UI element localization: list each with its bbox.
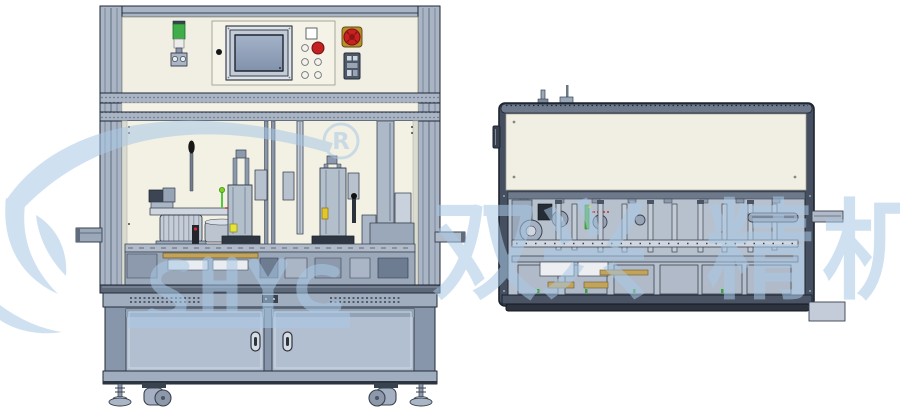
cross-beams bbox=[100, 93, 440, 121]
selector-square bbox=[306, 28, 317, 39]
leveling-foot-left bbox=[109, 384, 131, 406]
panel-knob bbox=[216, 49, 222, 55]
watermark-char-4: 机 bbox=[822, 190, 900, 315]
machine-drawing: R 双 兴 精 机 bbox=[0, 0, 900, 410]
start-button bbox=[312, 42, 324, 54]
front-view-machine bbox=[76, 6, 465, 406]
control-panel bbox=[122, 17, 418, 93]
registered-symbol-letter: R bbox=[332, 129, 350, 155]
top-posts bbox=[538, 85, 573, 104]
door-handle-right bbox=[283, 332, 292, 351]
connector-block bbox=[344, 53, 360, 79]
door-handle-left bbox=[251, 332, 260, 351]
estop-button bbox=[342, 27, 362, 47]
lever-knob bbox=[188, 141, 194, 154]
tower-light-green-segment bbox=[173, 24, 185, 39]
watermark-char-2: 兴 bbox=[540, 190, 648, 315]
upper-cover-panel bbox=[506, 114, 806, 190]
cad-render-canvas: R 双 兴 精 机 bbox=[0, 0, 900, 410]
hand-lever bbox=[352, 198, 356, 223]
leveling-foot-right bbox=[410, 384, 432, 406]
watermark-band bbox=[128, 312, 350, 328]
hmi-panel bbox=[212, 21, 335, 85]
caster-right bbox=[369, 383, 398, 406]
internal-column bbox=[377, 121, 394, 223]
watermark-char-3: 精 bbox=[706, 190, 814, 315]
watermark-char-1: 双 bbox=[432, 190, 540, 315]
side-tab bbox=[493, 126, 500, 148]
hmi-screen bbox=[226, 26, 292, 80]
caster-left bbox=[142, 383, 171, 406]
